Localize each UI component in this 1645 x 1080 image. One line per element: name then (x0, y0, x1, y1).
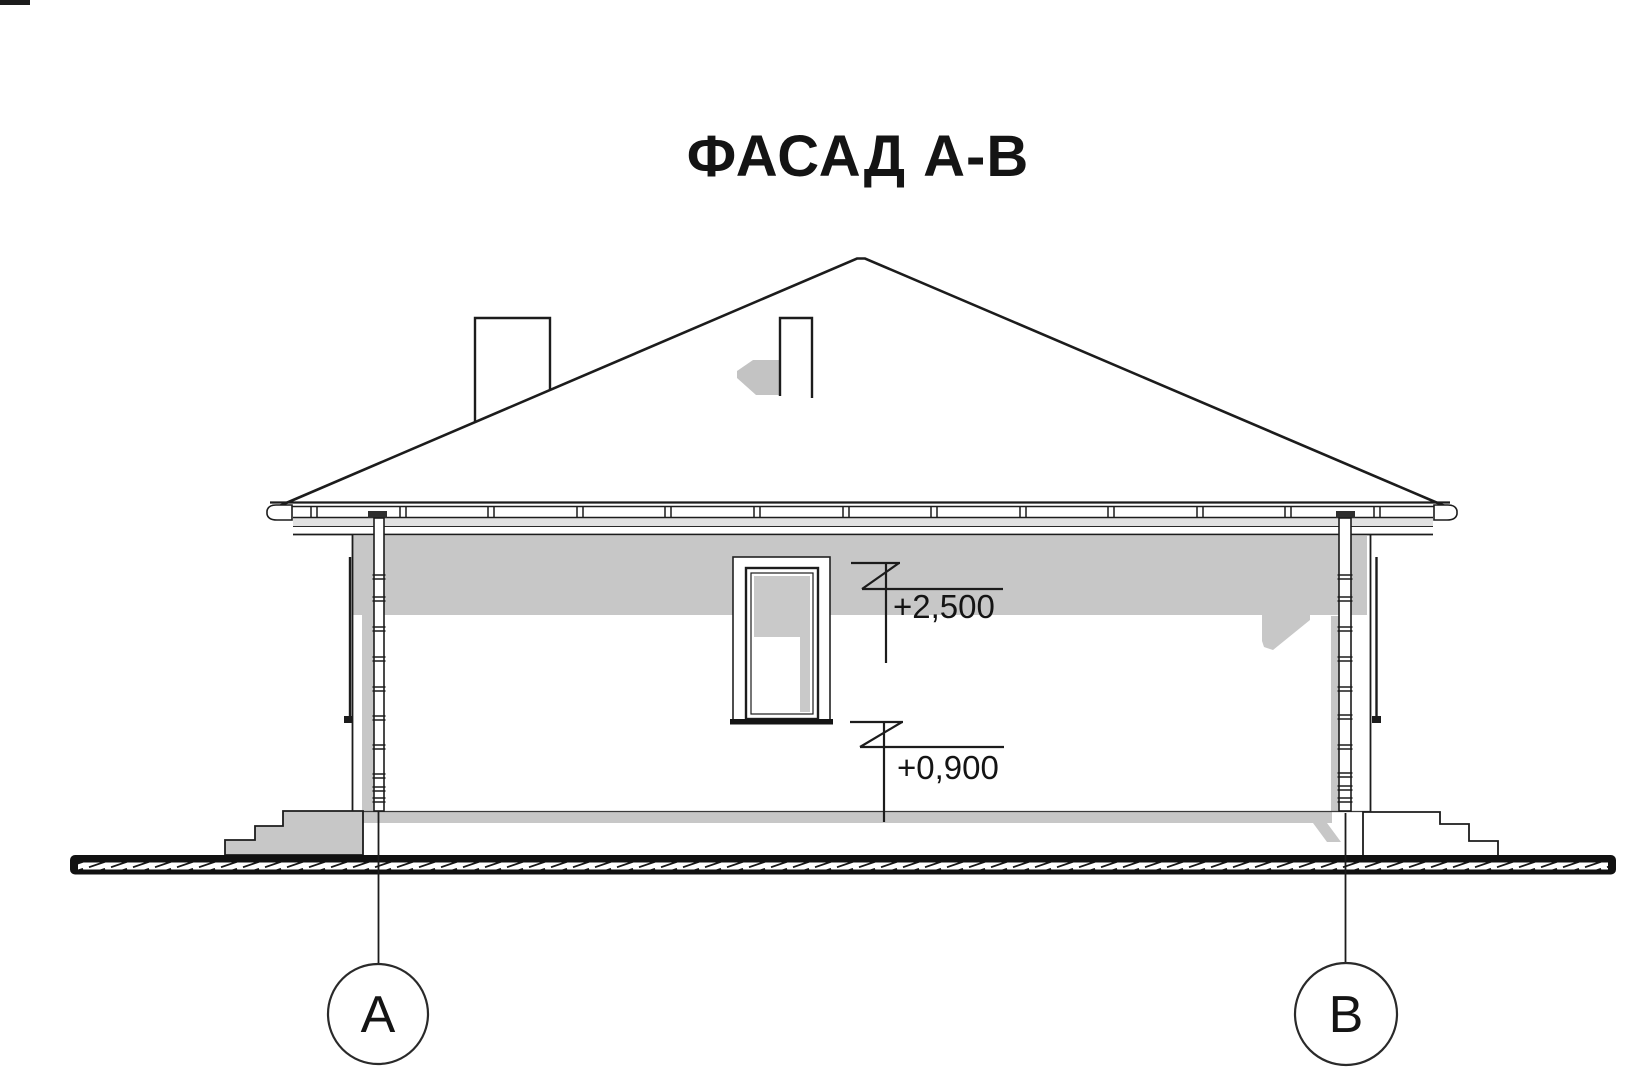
ground-hatch (78, 863, 1608, 870)
gutter-ticks (311, 507, 1380, 517)
elevation-marker-0900: +0,900 (850, 722, 1004, 822)
chimney-shadow (737, 360, 780, 395)
gutter-end-cap-right (1434, 505, 1457, 520)
page-edge-mark (0, 0, 30, 5)
fascia-shade (293, 518, 1433, 526)
right-wall-diagonal-shadow (1262, 615, 1310, 650)
elevation-value-0900: +0,900 (897, 749, 999, 786)
window-glass-reflection-side (800, 637, 810, 712)
wall-shadows (353, 360, 1367, 842)
side-window-sill-left (344, 716, 353, 723)
downspout-right-pipe (1339, 518, 1351, 811)
axis-b-label: В (1329, 986, 1364, 1044)
axis-a-label: А (361, 986, 396, 1044)
steps-right (1363, 812, 1498, 857)
downspout-left-pipe (374, 518, 384, 811)
elevation-value-2500: +2,500 (893, 588, 995, 625)
facade-drawing: ФАСАД А-В (0, 0, 1645, 1080)
window-glass-reflection-top (754, 576, 810, 637)
under-eave-shadow-band (353, 536, 1367, 615)
eaves (267, 503, 1457, 535)
window-sill (730, 719, 833, 725)
plinth-shadow-band (363, 812, 1332, 823)
roof-outline (273, 259, 1452, 510)
roof (273, 259, 1452, 510)
right-corner-shadow-strip (1331, 616, 1339, 812)
side-window-sill-right (1372, 716, 1381, 723)
downspout-left-elbow (368, 511, 387, 518)
ground-line (70, 855, 1616, 875)
plinth-diagonal-shadow (1313, 823, 1341, 842)
gutter-end-cap-left (267, 505, 292, 520)
left-corner-shadow-strip (362, 615, 374, 812)
facade-sheet: ФАСАД А-В (0, 0, 1645, 1080)
window (730, 557, 833, 725)
downspout-right-elbow (1336, 511, 1355, 518)
chimney-center (780, 318, 812, 398)
drawing-title: ФАСАД А-В (687, 124, 1030, 189)
steps-left (225, 811, 363, 855)
